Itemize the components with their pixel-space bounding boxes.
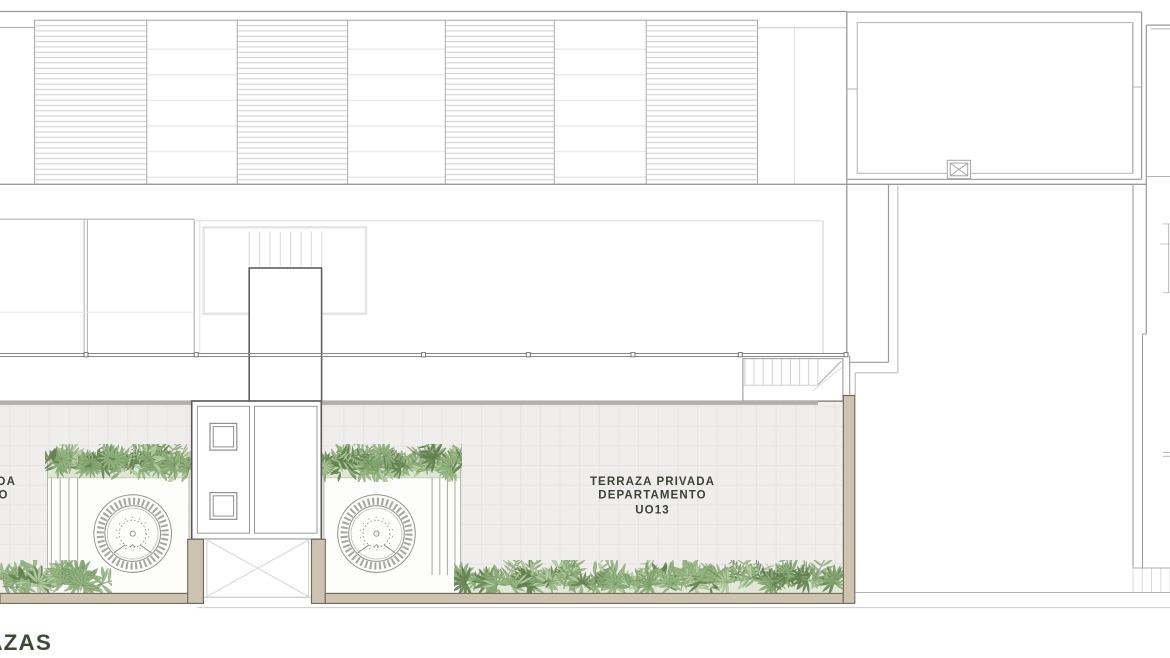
svg-text:DEPARTAMENTO: DEPARTAMENTO — [0, 490, 9, 502]
svg-text:UO13: UO13 — [635, 505, 669, 517]
svg-text:DEPARTAMENTO: DEPARTAMENTO — [598, 490, 706, 502]
svg-text:TERRAZAS: TERRAZAS — [0, 630, 52, 655]
svg-text:TERRAZA PRIVADA: TERRAZA PRIVADA — [590, 476, 715, 488]
svg-text:TERRAZA PRIVADA: TERRAZA PRIVADA — [0, 476, 16, 488]
